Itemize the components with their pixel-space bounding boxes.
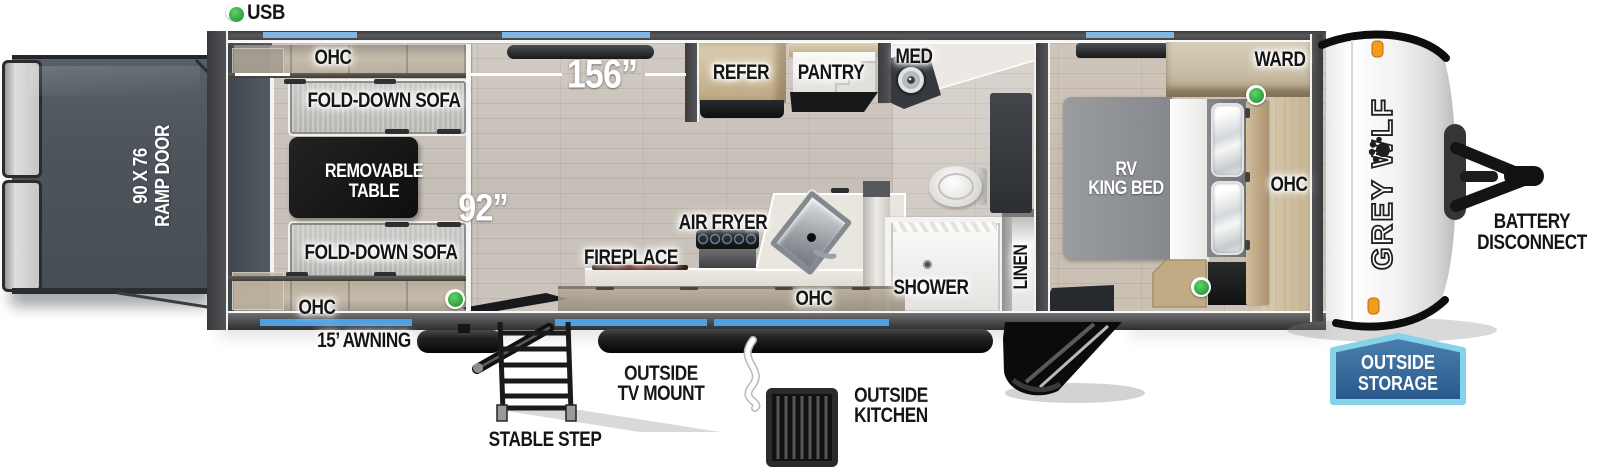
svg-text:LF: LF: [1367, 97, 1399, 137]
svg-text:OUTSIDE: OUTSIDE: [1361, 352, 1435, 374]
svg-text:GREY W: GREY W: [1367, 138, 1399, 270]
svg-text:STORAGE: STORAGE: [1358, 373, 1438, 395]
